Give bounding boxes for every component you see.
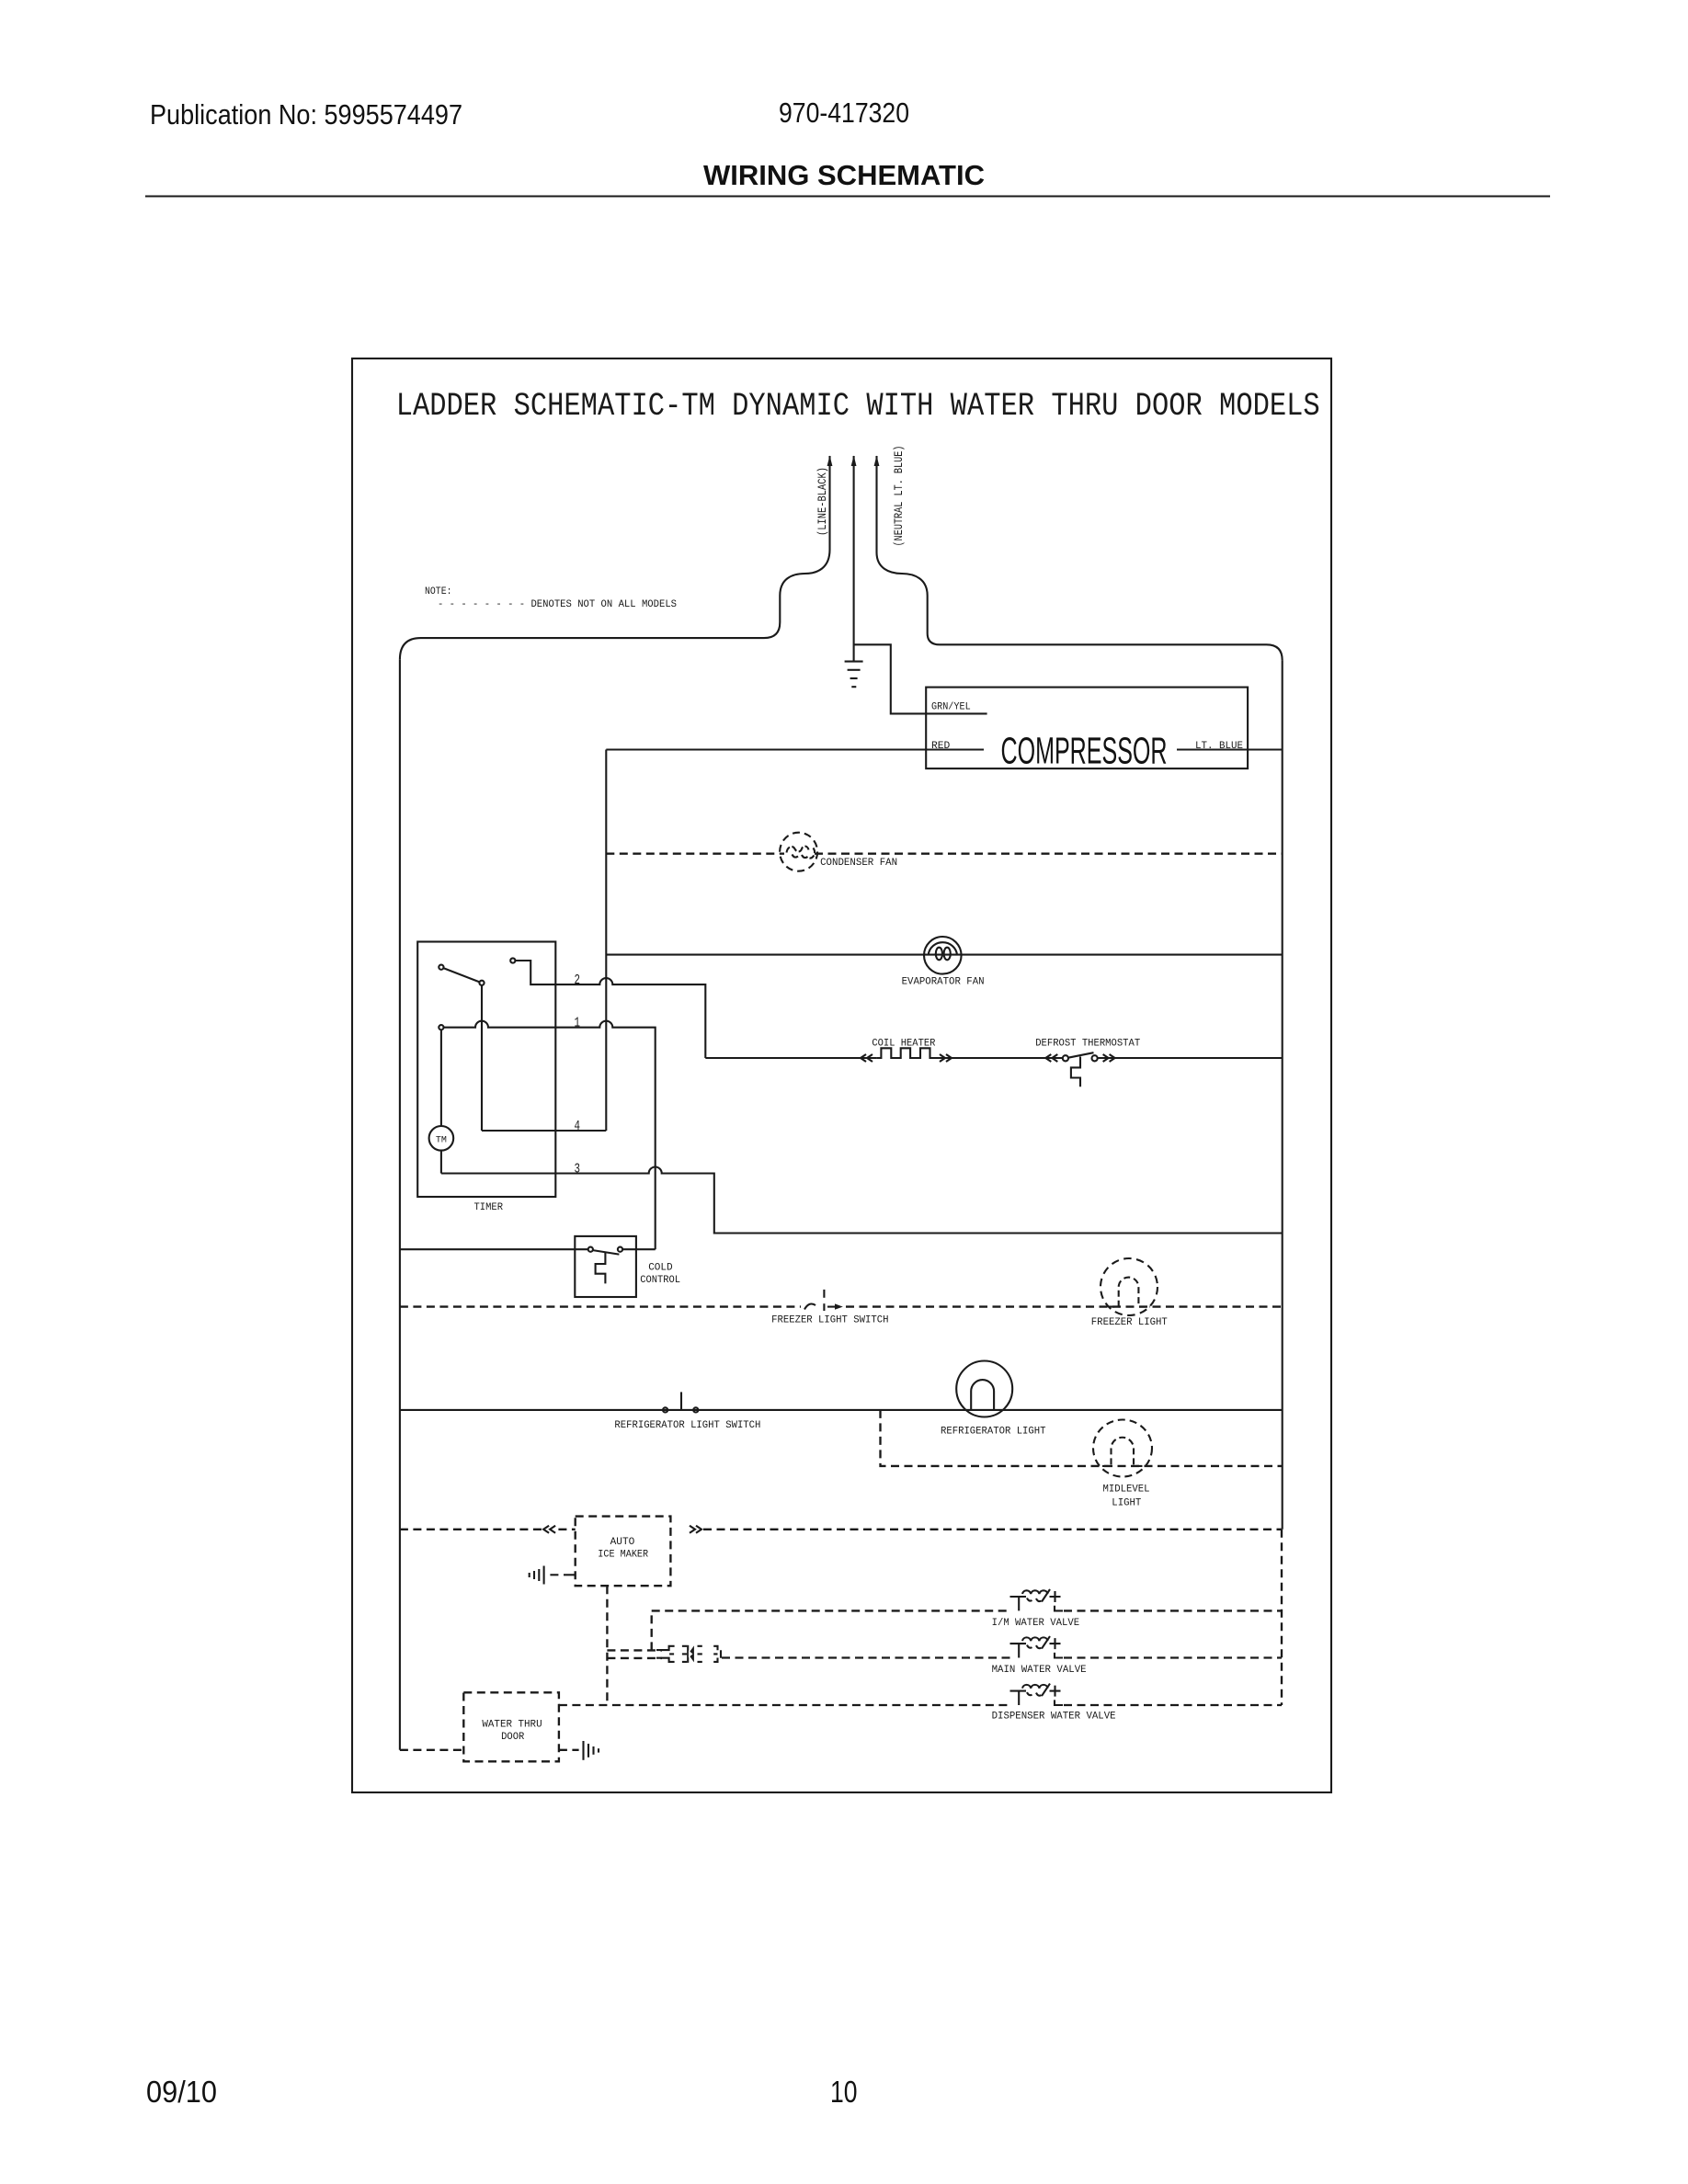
svg-text:NOTE:: NOTE: [425, 586, 452, 597]
svg-text:3: 3 [575, 1162, 581, 1177]
svg-text:LADDER SCHEMATIC-TM DYNAMIC WI: LADDER SCHEMATIC-TM DYNAMIC WITH WATER T… [396, 388, 1320, 425]
svg-text:MAIN WATER VALVE: MAIN WATER VALVE [992, 1665, 1087, 1676]
svg-text:WATER THRU: WATER THRU [482, 1720, 542, 1731]
svg-text:REFRIGERATOR LIGHT: REFRIGERATOR LIGHT [941, 1427, 1046, 1438]
svg-text:LT. BLUE: LT. BLUE [1195, 741, 1243, 752]
svg-text:GRN/YEL: GRN/YEL [931, 702, 971, 713]
svg-text:TIMER: TIMER [474, 1202, 504, 1213]
svg-text:LIGHT: LIGHT [1112, 1498, 1141, 1509]
svg-text:CONTROL: CONTROL [640, 1275, 680, 1286]
svg-text:Publication No: 5995574497: Publication No: 5995574497 [150, 98, 462, 131]
svg-text:FREEZER LIGHT: FREEZER LIGHT [1091, 1317, 1168, 1328]
svg-text:CONDENSER FAN: CONDENSER FAN [820, 858, 897, 869]
svg-text:ICE MAKER: ICE MAKER [598, 1549, 648, 1560]
svg-text:(NEUTRAL LT. BLUE): (NEUTRAL LT. BLUE) [892, 446, 906, 547]
svg-text:COLD: COLD [648, 1263, 673, 1274]
svg-text:AUTO: AUTO [610, 1537, 635, 1548]
svg-text:(LINE-BLACK): (LINE-BLACK) [815, 467, 829, 536]
svg-text:COIL HEATER: COIL HEATER [872, 1039, 935, 1050]
svg-text:DEFROST THERMOSTAT: DEFROST THERMOSTAT [1035, 1039, 1140, 1050]
svg-text:MIDLEVEL: MIDLEVEL [1103, 1484, 1150, 1496]
svg-text:- - - - - - - - DENOTES NOT ON: - - - - - - - - DENOTES NOT ON ALL MODEL… [438, 599, 677, 610]
svg-text:FREEZER LIGHT SWITCH: FREEZER LIGHT SWITCH [771, 1315, 888, 1326]
svg-text:EVAPORATOR FAN: EVAPORATOR FAN [902, 977, 985, 988]
svg-text:09/10: 09/10 [146, 2075, 217, 2109]
svg-text:I/M WATER VALVE: I/M WATER VALVE [992, 1618, 1080, 1629]
svg-text:DISPENSER WATER VALVE: DISPENSER WATER VALVE [992, 1712, 1116, 1723]
svg-text:1: 1 [575, 1016, 581, 1031]
svg-text:RED: RED [931, 741, 951, 752]
svg-text:DOOR: DOOR [501, 1732, 524, 1743]
svg-text:2: 2 [575, 973, 581, 988]
svg-text:TM: TM [436, 1136, 447, 1146]
svg-text:970-417320: 970-417320 [779, 97, 909, 129]
svg-text:REFRIGERATOR LIGHT SWITCH: REFRIGERATOR LIGHT SWITCH [614, 1420, 760, 1431]
svg-text:WIRING SCHEMATIC: WIRING SCHEMATIC [703, 159, 985, 191]
svg-text:4: 4 [575, 1119, 581, 1134]
svg-text:10: 10 [830, 2075, 858, 2109]
svg-text:COMPRESSOR: COMPRESSOR [1001, 730, 1168, 772]
